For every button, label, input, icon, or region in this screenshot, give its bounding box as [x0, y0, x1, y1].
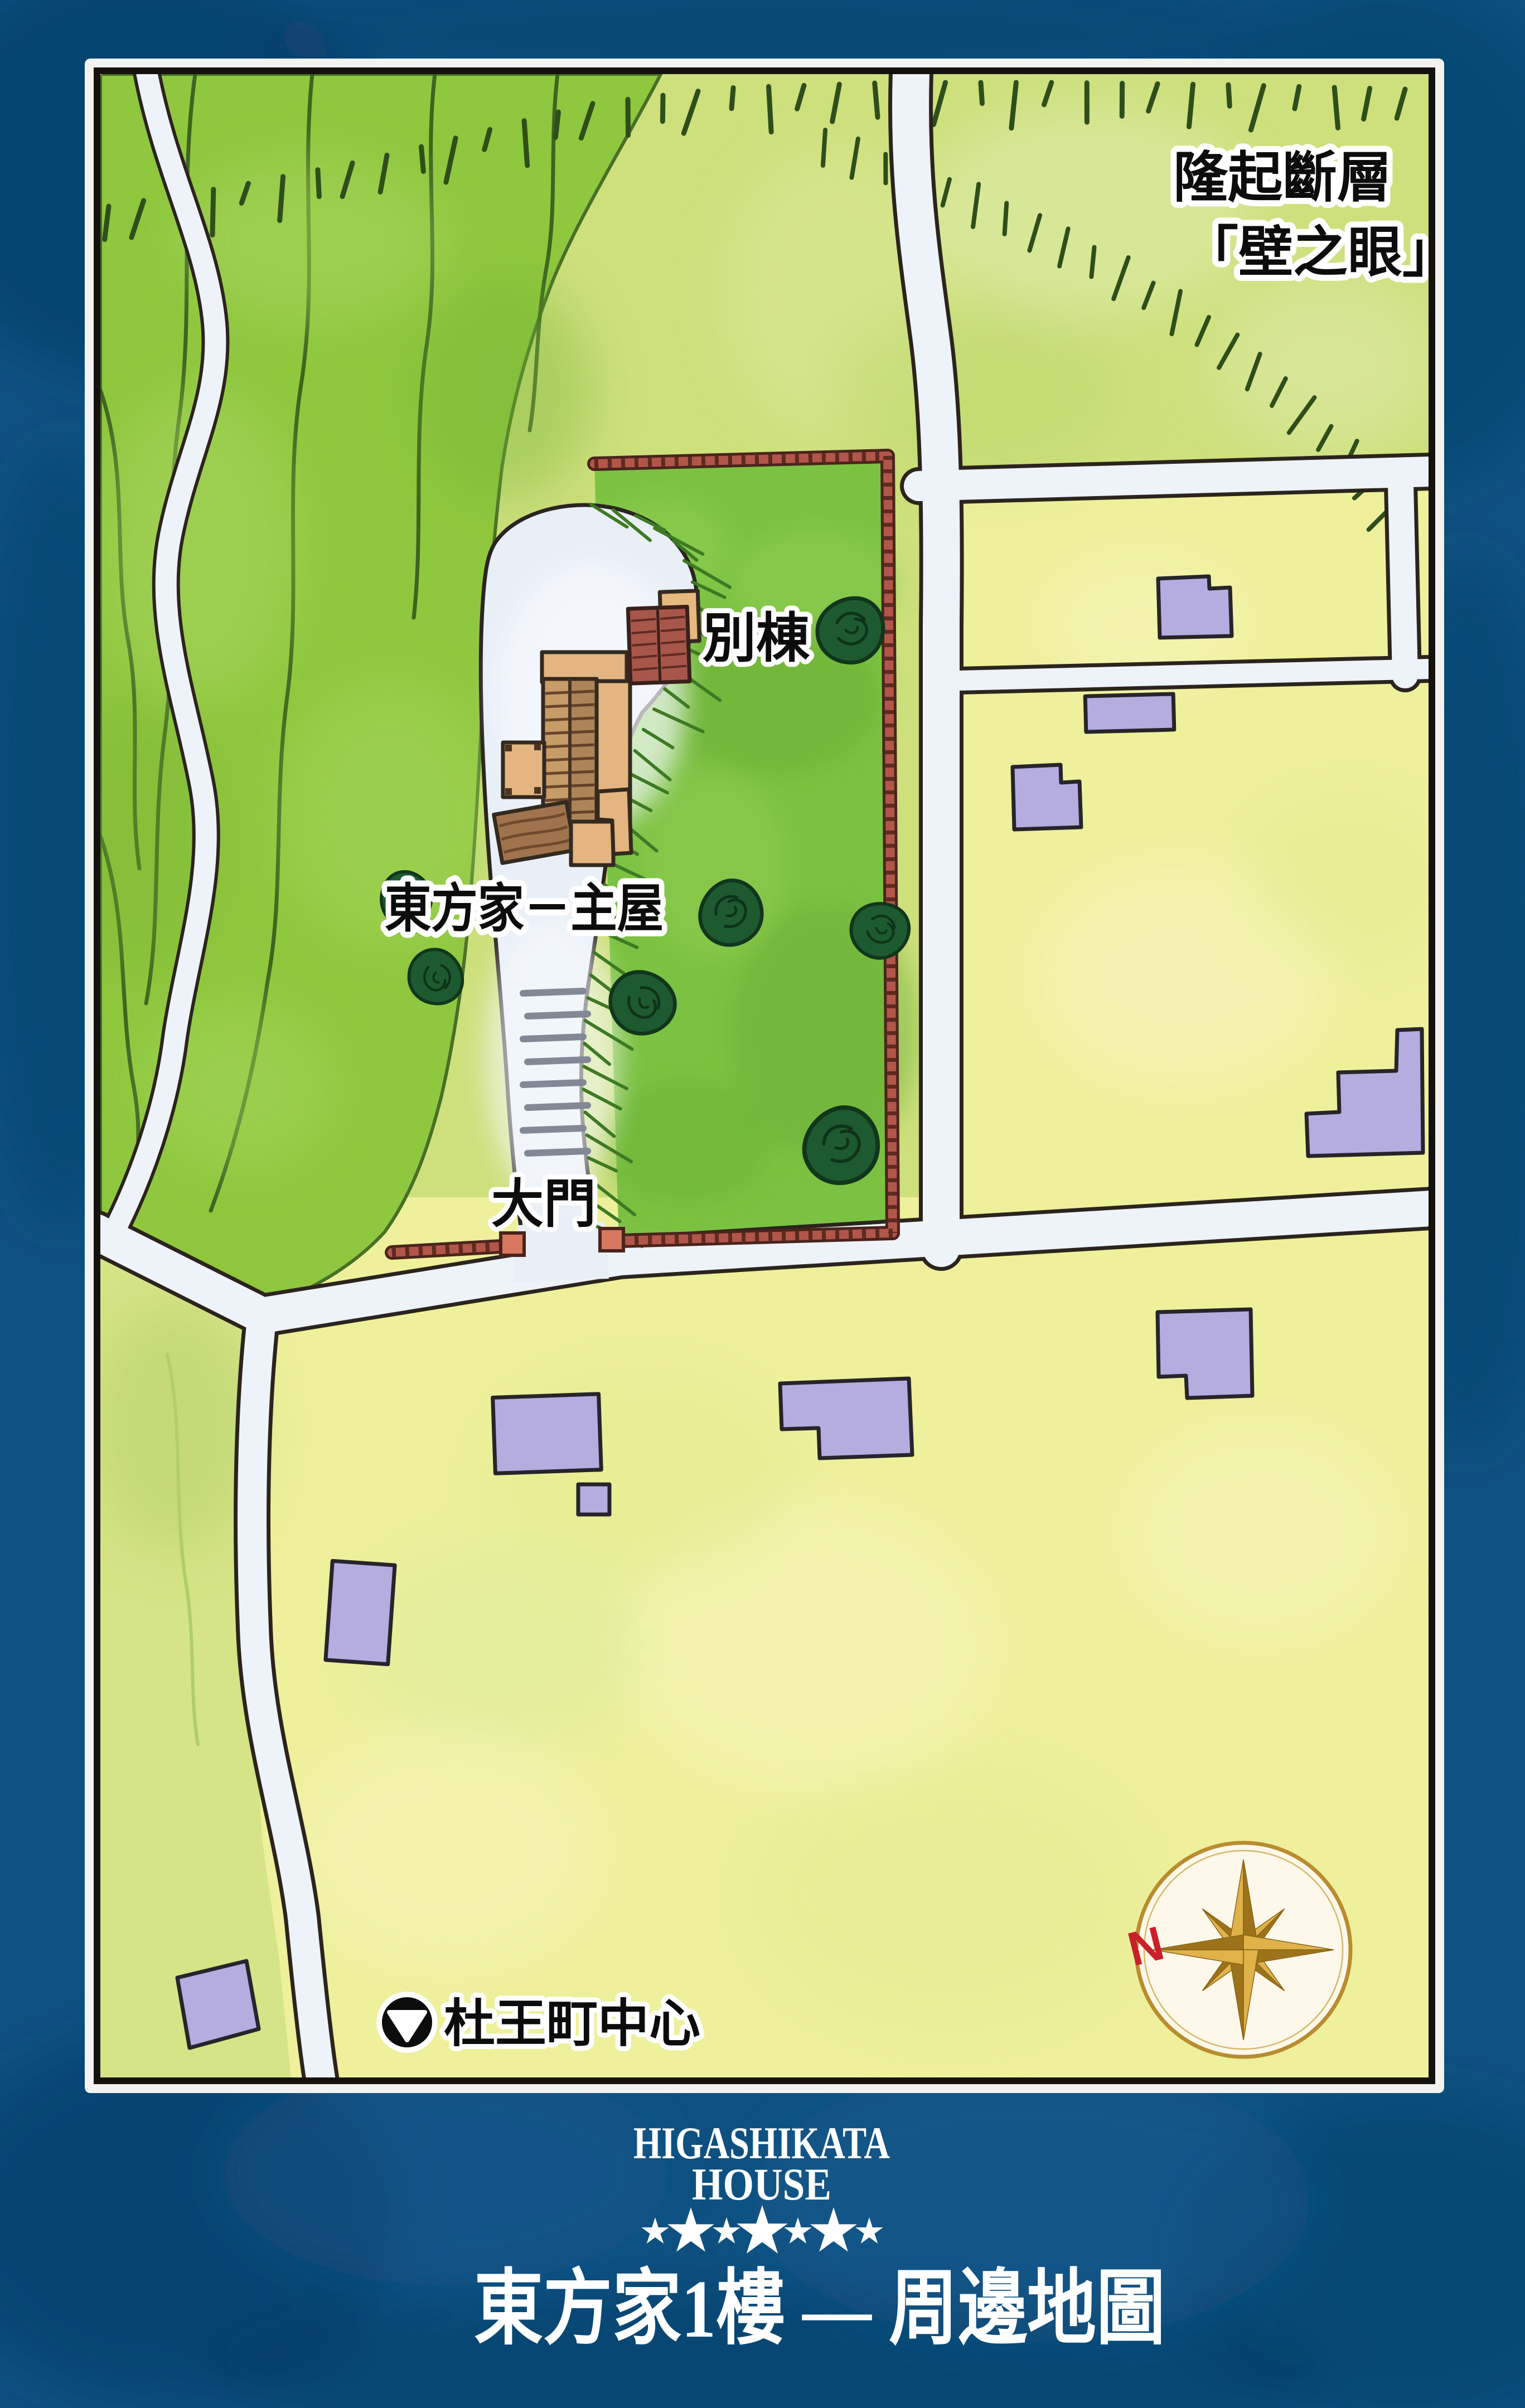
building: [1085, 694, 1174, 732]
label-fault-name: 「壁之眼」: [1184, 221, 1457, 283]
logo-house: HOUSE: [692, 2159, 831, 2210]
page-title: 東方家1樓 — 周邊地圖: [474, 2264, 1165, 2355]
town-center-marker: 杜王町中心: [379, 1994, 700, 2052]
label-main-house: 東方家－主屋: [385, 879, 664, 938]
label-fault: 隆起斷層: [1173, 147, 1392, 208]
label-main-gate: 大門: [491, 1174, 596, 1233]
label-town-center: 杜王町中心: [444, 1996, 700, 2052]
building: [326, 1561, 395, 1664]
poster: N 隆起斷層 「壁之眼」 別棟 東方家－主屋 大門 杜王町中心 HIGASHIK…: [0, 0, 1525, 2408]
building: [493, 1394, 602, 1474]
road-horizontal-mid: [937, 669, 1430, 681]
map-panel: N 隆起斷層 「壁之眼」 別棟 東方家－主屋 大門 杜王町中心: [56, 59, 1457, 2093]
gate-post-left: [501, 1233, 524, 1255]
road-vertical-right: [1401, 484, 1405, 676]
road-horizontal-upper: [919, 472, 1430, 486]
building: [578, 1484, 609, 1514]
gate-post-right: [600, 1229, 623, 1251]
label-annex: 別棟: [703, 609, 810, 668]
